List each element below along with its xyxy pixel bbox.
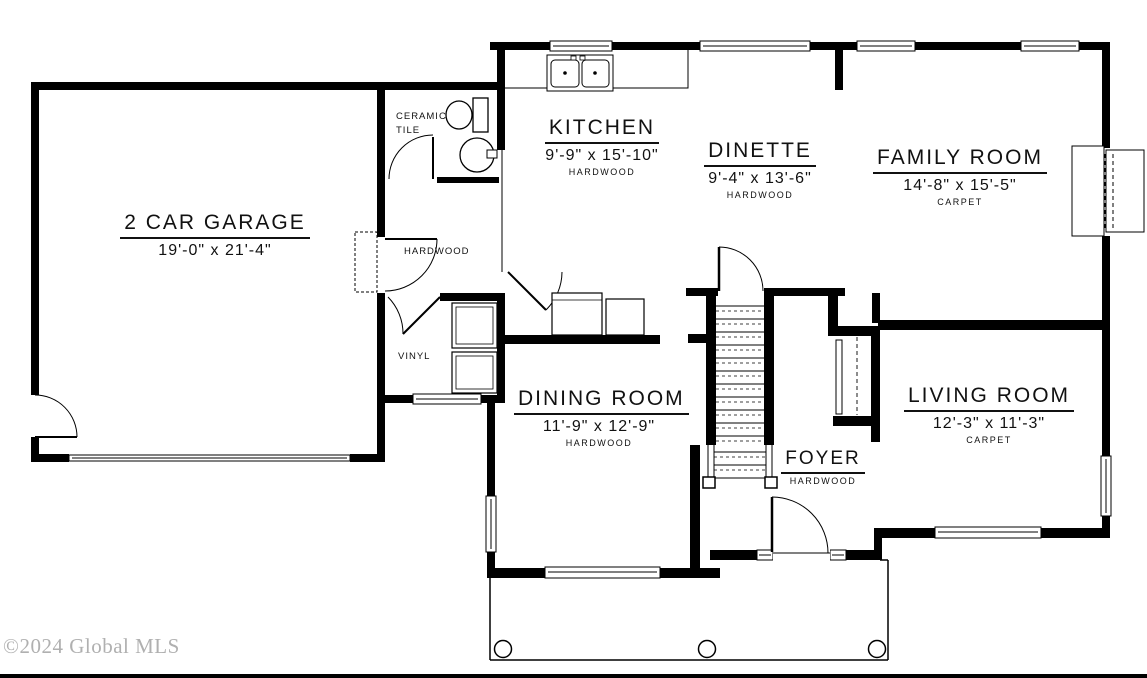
foyer-closet [836, 337, 857, 415]
living-room-dims: 12'-3" x 11'-3" [904, 415, 1074, 433]
bathroom-door [389, 135, 433, 179]
dining-room-side-window [486, 496, 496, 552]
wall-segment [706, 292, 716, 445]
wall-segment [497, 293, 505, 403]
kitchen-sink [547, 55, 613, 91]
garage-step [355, 232, 377, 292]
pedestal-sink [460, 138, 497, 172]
wall-segment [835, 50, 843, 90]
wall-segment [690, 445, 700, 568]
refrigerator [552, 293, 602, 335]
hall-hardwood-label: HARDWOOD [404, 245, 470, 259]
wall-segment [31, 454, 69, 462]
wall-segment [1102, 42, 1110, 148]
dining-room-floor: HARDWOOD [514, 438, 684, 448]
dining-room-label: DINING ROOM 11'-9" x 12'-9" HARDWOOD [514, 387, 684, 448]
wall-segment [872, 293, 880, 323]
stair-newel [703, 477, 715, 488]
dining-room-front-window [545, 567, 660, 578]
laundry-window [413, 394, 481, 404]
garage-overhead-door [69, 455, 350, 461]
family-room-dims: 14'-8" x 15'-5" [872, 177, 1048, 195]
wall-segment [440, 293, 505, 301]
kitchen-label: KITCHEN 9'-9" x 15'-10" HARDWOOD [534, 116, 670, 177]
wall-segment [497, 335, 660, 344]
wall-segment [377, 82, 385, 237]
wall-segment [31, 82, 385, 90]
living-room-floor: CARPET [904, 435, 1074, 445]
wall-segment [878, 320, 1102, 330]
wall-segment [377, 293, 385, 462]
foyer-floor: HARDWOOD [780, 476, 866, 486]
wall-segment [833, 416, 880, 426]
living-room-front-window [935, 527, 1041, 538]
windows [413, 41, 1111, 578]
dinette-floor: HARDWOOD [696, 190, 824, 200]
living-room-label: LIVING ROOM 12'-3" x 11'-3" CARPET [904, 384, 1074, 445]
wall-segment [437, 177, 499, 183]
garage-entry-door [355, 232, 437, 292]
vinyl-label: VINYL [398, 350, 430, 364]
kitchen-floor: HARDWOOD [534, 167, 670, 177]
washer [452, 303, 497, 348]
living-room-name: LIVING ROOM [904, 384, 1074, 412]
kitchen-name: KITCHEN [545, 116, 659, 144]
family-room-label: FAMILY ROOM 14'-8" x 15'-5" CARPET [872, 146, 1048, 207]
dryer [452, 352, 497, 393]
front-door-sidelight-right [830, 550, 846, 560]
porch-column [699, 641, 716, 658]
image-bottom-edge [0, 674, 1147, 678]
stair-newel [765, 477, 777, 488]
wall-segment [764, 292, 774, 445]
dinette-window [700, 41, 810, 51]
watermark: ©2024 Global MLS [3, 634, 180, 659]
kitchen-dims: 9'-9" x 15'-10" [534, 147, 670, 165]
floor-plan-drawing [0, 0, 1147, 678]
laundry-door [388, 297, 440, 334]
wall-segment [497, 50, 505, 150]
wall-segment [31, 82, 39, 395]
porch-column [869, 641, 886, 658]
kitchen-window [550, 41, 612, 51]
family-room-window-left [857, 41, 915, 51]
toilet [446, 98, 488, 132]
ceramic-tile-label: CERAMIC TILE [396, 110, 447, 139]
family-room-window-right [1021, 41, 1079, 51]
dinette-dims: 9'-4" x 13'-6" [696, 170, 824, 188]
wall-segment [377, 82, 505, 90]
dining-room-name: DINING ROOM [514, 387, 689, 415]
dinette-name: DINETTE [704, 139, 816, 167]
garage-side-door [35, 395, 77, 437]
garage-label: 2 CAR GARAGE 19'-0" x 21'-4" [110, 211, 320, 260]
fireplace [1072, 146, 1144, 236]
wall-segment [828, 293, 838, 331]
family-room-name: FAMILY ROOM [873, 146, 1047, 174]
living-room-side-window [1101, 456, 1111, 516]
dining-room-dims: 11'-9" x 12'-9" [514, 418, 684, 436]
garage-name: 2 CAR GARAGE [120, 211, 310, 239]
foyer-label: FOYER HARDWOOD [780, 448, 866, 486]
floor-plan: 2 CAR GARAGE 19'-0" x 21'-4" KITCHEN 9'-… [0, 0, 1147, 678]
front-door-sidelight-left [757, 550, 773, 560]
garage-dims: 19'-0" x 21'-4" [110, 242, 320, 260]
front-door [772, 497, 830, 561]
family-room-floor: CARPET [872, 197, 1048, 207]
range [606, 299, 644, 335]
foyer-name: FOYER [781, 448, 864, 474]
porch-column [495, 641, 512, 658]
dinette-label: DINETTE 9'-4" x 13'-6" HARDWOOD [696, 139, 824, 200]
basement-door [719, 247, 763, 291]
